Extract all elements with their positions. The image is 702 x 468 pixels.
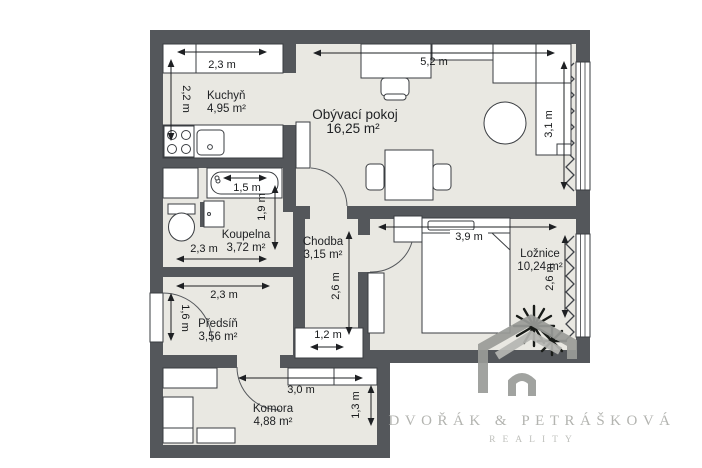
dim-bathroom-depth: 1,9 m bbox=[256, 193, 268, 221]
room-label-entry: Předsíň 3,56 m² bbox=[198, 318, 238, 343]
dim-kitchen-width: 2,3 m bbox=[208, 59, 236, 71]
svg-text:Kuchyň: Kuchyň bbox=[207, 90, 245, 102]
washing-machine bbox=[163, 397, 193, 428]
sink-icon bbox=[197, 130, 224, 155]
toilet bbox=[168, 204, 195, 241]
dim-bathtub-width: 1,5 m bbox=[233, 182, 261, 194]
stove-icon bbox=[164, 126, 194, 157]
room-label-bedroom: Ložnice 10,24 m² bbox=[517, 248, 563, 273]
room-label-kitchen: Kuchyň 4,95 m² bbox=[207, 90, 246, 115]
dim-living-width: 5,2 m bbox=[420, 56, 448, 68]
svg-text:Ložnice: Ložnice bbox=[520, 248, 560, 260]
storage-cabinet bbox=[197, 428, 235, 443]
entry-door bbox=[150, 293, 163, 342]
living-door-leaf bbox=[296, 122, 310, 168]
svg-text:Chodba: Chodba bbox=[303, 236, 344, 248]
dim-closet-width: 1,2 m bbox=[314, 329, 342, 341]
dining-chair bbox=[366, 164, 384, 190]
svg-text:16,25 m²: 16,25 m² bbox=[326, 121, 380, 136]
svg-text:10,24 m²: 10,24 m² bbox=[517, 261, 563, 273]
svg-text:Komora: Komora bbox=[253, 403, 294, 415]
room-label-bathroom: Koupelna 3,72 m² bbox=[222, 229, 271, 254]
dim-entry-width: 2,3 m bbox=[210, 289, 238, 301]
nightstand bbox=[368, 273, 384, 333]
company-name: DVOŘÁK & PETRÁŠKOVÁ bbox=[388, 412, 675, 429]
dim-living-depth: 3,1 m bbox=[543, 110, 555, 138]
bedroom-window bbox=[576, 234, 590, 337]
room-label-storage: Komora 4,88 m² bbox=[253, 403, 294, 428]
svg-text:Předsíň: Předsíň bbox=[198, 318, 238, 330]
dining-chair bbox=[433, 164, 451, 190]
living-window bbox=[576, 62, 590, 190]
svg-text:4,88 m²: 4,88 m² bbox=[254, 416, 293, 428]
company-tagline: REALITY bbox=[489, 435, 579, 445]
bathroom-cabinet bbox=[163, 168, 198, 198]
storage-shelf bbox=[163, 368, 217, 388]
svg-text:3,56 m²: 3,56 m² bbox=[199, 331, 238, 343]
round-table bbox=[484, 102, 526, 144]
storage-counter bbox=[288, 368, 377, 385]
svg-text:4,95 m²: 4,95 m² bbox=[207, 103, 246, 115]
floor-plan-canvas: 2,3 m 2,2 m 5,2 m 3,1 m 1,5 m 1,9 m 2,3 … bbox=[0, 0, 702, 468]
svg-text:3,15 m²: 3,15 m² bbox=[304, 249, 343, 261]
svg-text:Koupelna: Koupelna bbox=[222, 229, 271, 241]
desk-chair bbox=[381, 78, 409, 100]
dim-storage-depth: 1,3 m bbox=[350, 391, 362, 419]
storage-cabinet bbox=[163, 428, 193, 443]
washbasin-cabinet bbox=[204, 201, 224, 227]
svg-text:3,72 m²: 3,72 m² bbox=[227, 242, 266, 254]
dim-hallway-depth: 2,6 m bbox=[330, 272, 342, 300]
dim-bathroom-width: 2,3 m bbox=[190, 243, 218, 255]
room-label-hallway: Chodba 3,15 m² bbox=[303, 236, 344, 261]
dining-table bbox=[385, 150, 433, 200]
bedside-table bbox=[394, 216, 422, 242]
dim-bedroom-width: 3,9 m bbox=[455, 231, 483, 243]
dim-entry-depth: 1,6 m bbox=[179, 304, 191, 332]
svg-text:Obývací pokoj: Obývací pokoj bbox=[312, 107, 398, 122]
dim-kitchen-depth: 2,2 m bbox=[180, 85, 192, 113]
dim-storage-width: 3,0 m bbox=[287, 384, 315, 396]
floor-plan: 2,3 m 2,2 m 5,2 m 3,1 m 1,5 m 1,9 m 2,3 … bbox=[0, 0, 702, 468]
